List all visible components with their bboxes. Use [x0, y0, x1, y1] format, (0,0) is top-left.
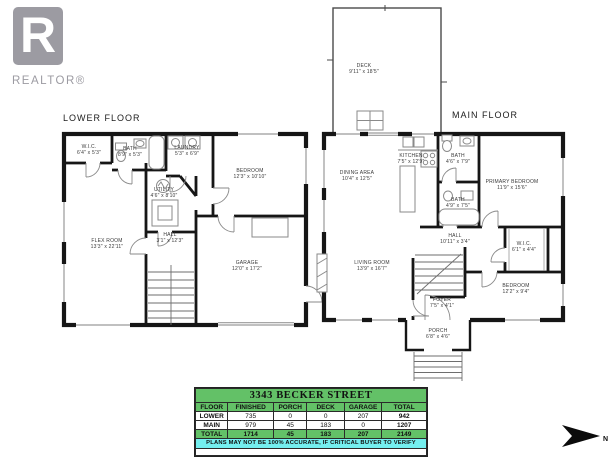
room-dims: 12'0" x 17'2": [232, 266, 262, 272]
cell: TOTAL: [196, 430, 228, 439]
cell: 942: [382, 412, 427, 421]
cell: MAIN: [196, 421, 228, 430]
room-label-main-hall: HALL 10'11" x 3'4": [440, 233, 470, 245]
room-dims: 13'9" x 16'7": [357, 266, 387, 272]
room-dims: 6'1" x 4'4": [512, 247, 536, 253]
room-dims: 6'8" x 4'6": [426, 334, 450, 340]
cell: 2149: [382, 430, 427, 439]
room-label-main-bath-top: BATH 4'6" x 7'9": [446, 153, 470, 165]
room-label-lower-bedroom: BEDROOM 12'3" x 10'10": [233, 168, 266, 180]
room-dims: 4'9" x 7'5": [446, 203, 470, 209]
room-dims: 4'6" x 7'9": [446, 159, 470, 165]
room-dims: 6'4" x 5'3": [77, 150, 101, 156]
cell: LOWER: [196, 412, 228, 421]
table-row-main: MAIN 979 45 183 0 1207: [196, 421, 427, 430]
room-dims: 7'5" x 12'9": [397, 159, 424, 165]
table-disclaimer: PLANS MAY NOT BE 100% ACCURATE, IF CRITI…: [196, 439, 427, 449]
area-table: 3343 BECKER STREET FLOOR FINISHED PORCH …: [194, 387, 428, 457]
cell: 979: [228, 421, 274, 430]
room-label-lower-garage: GARAGE 12'0" x 17'2": [232, 260, 262, 272]
north-arrow-label: N: [603, 436, 608, 443]
room-dims: 3'1" x 12'3": [156, 238, 183, 244]
main-floor-plan: [317, 132, 566, 382]
room-dims: 10'4" x 12'5": [342, 176, 372, 182]
room-label-main-wic: W.I.C. 6'1" x 4'4": [512, 241, 536, 253]
room-label-porch: PORCH 6'8" x 4'6": [426, 328, 450, 340]
cell: 735: [228, 412, 274, 421]
cell: 183: [307, 430, 344, 439]
cell: 0: [307, 412, 344, 421]
col-header: PORCH: [273, 403, 306, 412]
room-label-primary-bedroom: PRIMARY BEDROOM 11'9" x 15'6": [486, 179, 539, 191]
room-label-lower-hall: HALL 3'1" x 12'3": [156, 232, 183, 244]
room-label-main-bedroom: BEDROOM 12'2" x 9'4": [502, 283, 529, 295]
room-label-foyer: FOYER 7'5" x 4'1": [430, 297, 454, 309]
table-row-lower: LOWER 735 0 0 207 942: [196, 412, 427, 421]
lower-stairs: [148, 265, 194, 325]
table-title: 3343 BECKER STREET: [196, 389, 427, 403]
table-header-row: FLOOR FINISHED PORCH DECK GARAGE TOTAL: [196, 403, 427, 412]
cell: 1714: [228, 430, 274, 439]
room-dims: 12'3" x 10'10": [233, 174, 266, 180]
col-header: TOTAL: [382, 403, 427, 412]
lower-floor-plan: [62, 132, 323, 328]
room-label-lower-utility: UTILITY 4'6" x 8'10": [150, 187, 177, 199]
table-row-total: TOTAL 1714 45 183 207 2149: [196, 430, 427, 439]
room-dims: 4'6" x 8'10": [150, 193, 177, 199]
room-dims: 5'3" x 6'9": [175, 151, 199, 157]
north-arrow-icon: N: [556, 420, 608, 459]
room-label-dining: DINING AREA 10'4" x 12'5": [340, 170, 374, 182]
room-label-main-bath-mid: BATH 4'9" x 7'5": [446, 197, 470, 209]
room-dims: 8'9" x 5'3": [118, 152, 142, 158]
main-fixtures: [317, 135, 544, 292]
room-dims: 10'11" x 3'4": [440, 239, 470, 245]
room-dims: 13'3" x 22'11": [91, 244, 124, 250]
room-label-deck: DECK 9'11" x 18'5": [349, 63, 379, 75]
cell: 207: [344, 412, 381, 421]
room-dims: 11'9" x 15'6": [497, 185, 527, 191]
col-header: FLOOR: [196, 403, 228, 412]
cell: 207: [344, 430, 381, 439]
room-dims: 9'11" x 18'5": [349, 69, 379, 75]
cell: 45: [273, 430, 306, 439]
floorplan-page: R REALTOR® LOWER FLOOR MAIN FLOOR: [0, 0, 612, 459]
cell: 1207: [382, 421, 427, 430]
room-label-lower-laundry: LAUNDRY 5'3" x 6'9": [174, 145, 199, 157]
cell: 0: [273, 412, 306, 421]
col-header: GARAGE: [344, 403, 381, 412]
table-footer-blank: [196, 449, 427, 456]
porch-steps: [414, 352, 462, 381]
room-dims: 7'5" x 4'1": [430, 303, 454, 309]
room-label-lower-wic: W.I.C. 6'4" x 5'3": [77, 144, 101, 156]
col-header: FINISHED: [228, 403, 274, 412]
cell: 45: [273, 421, 306, 430]
room-label-living-room: LIVING ROOM 13'9" x 16'7": [354, 260, 390, 272]
room-dims: 12'2" x 9'4": [502, 289, 529, 295]
cell: 183: [307, 421, 344, 430]
cell: 0: [344, 421, 381, 430]
deck-outline: [327, 5, 447, 134]
room-label-lower-flex: FLEX ROOM 13'3" x 22'11": [91, 238, 124, 250]
col-header: DECK: [307, 403, 344, 412]
room-label-kitchen: KITCHEN 7'5" x 12'9": [397, 153, 424, 165]
room-label-lower-bath: BATH 8'9" x 5'3": [118, 146, 142, 158]
main-stairs: [415, 254, 463, 294]
